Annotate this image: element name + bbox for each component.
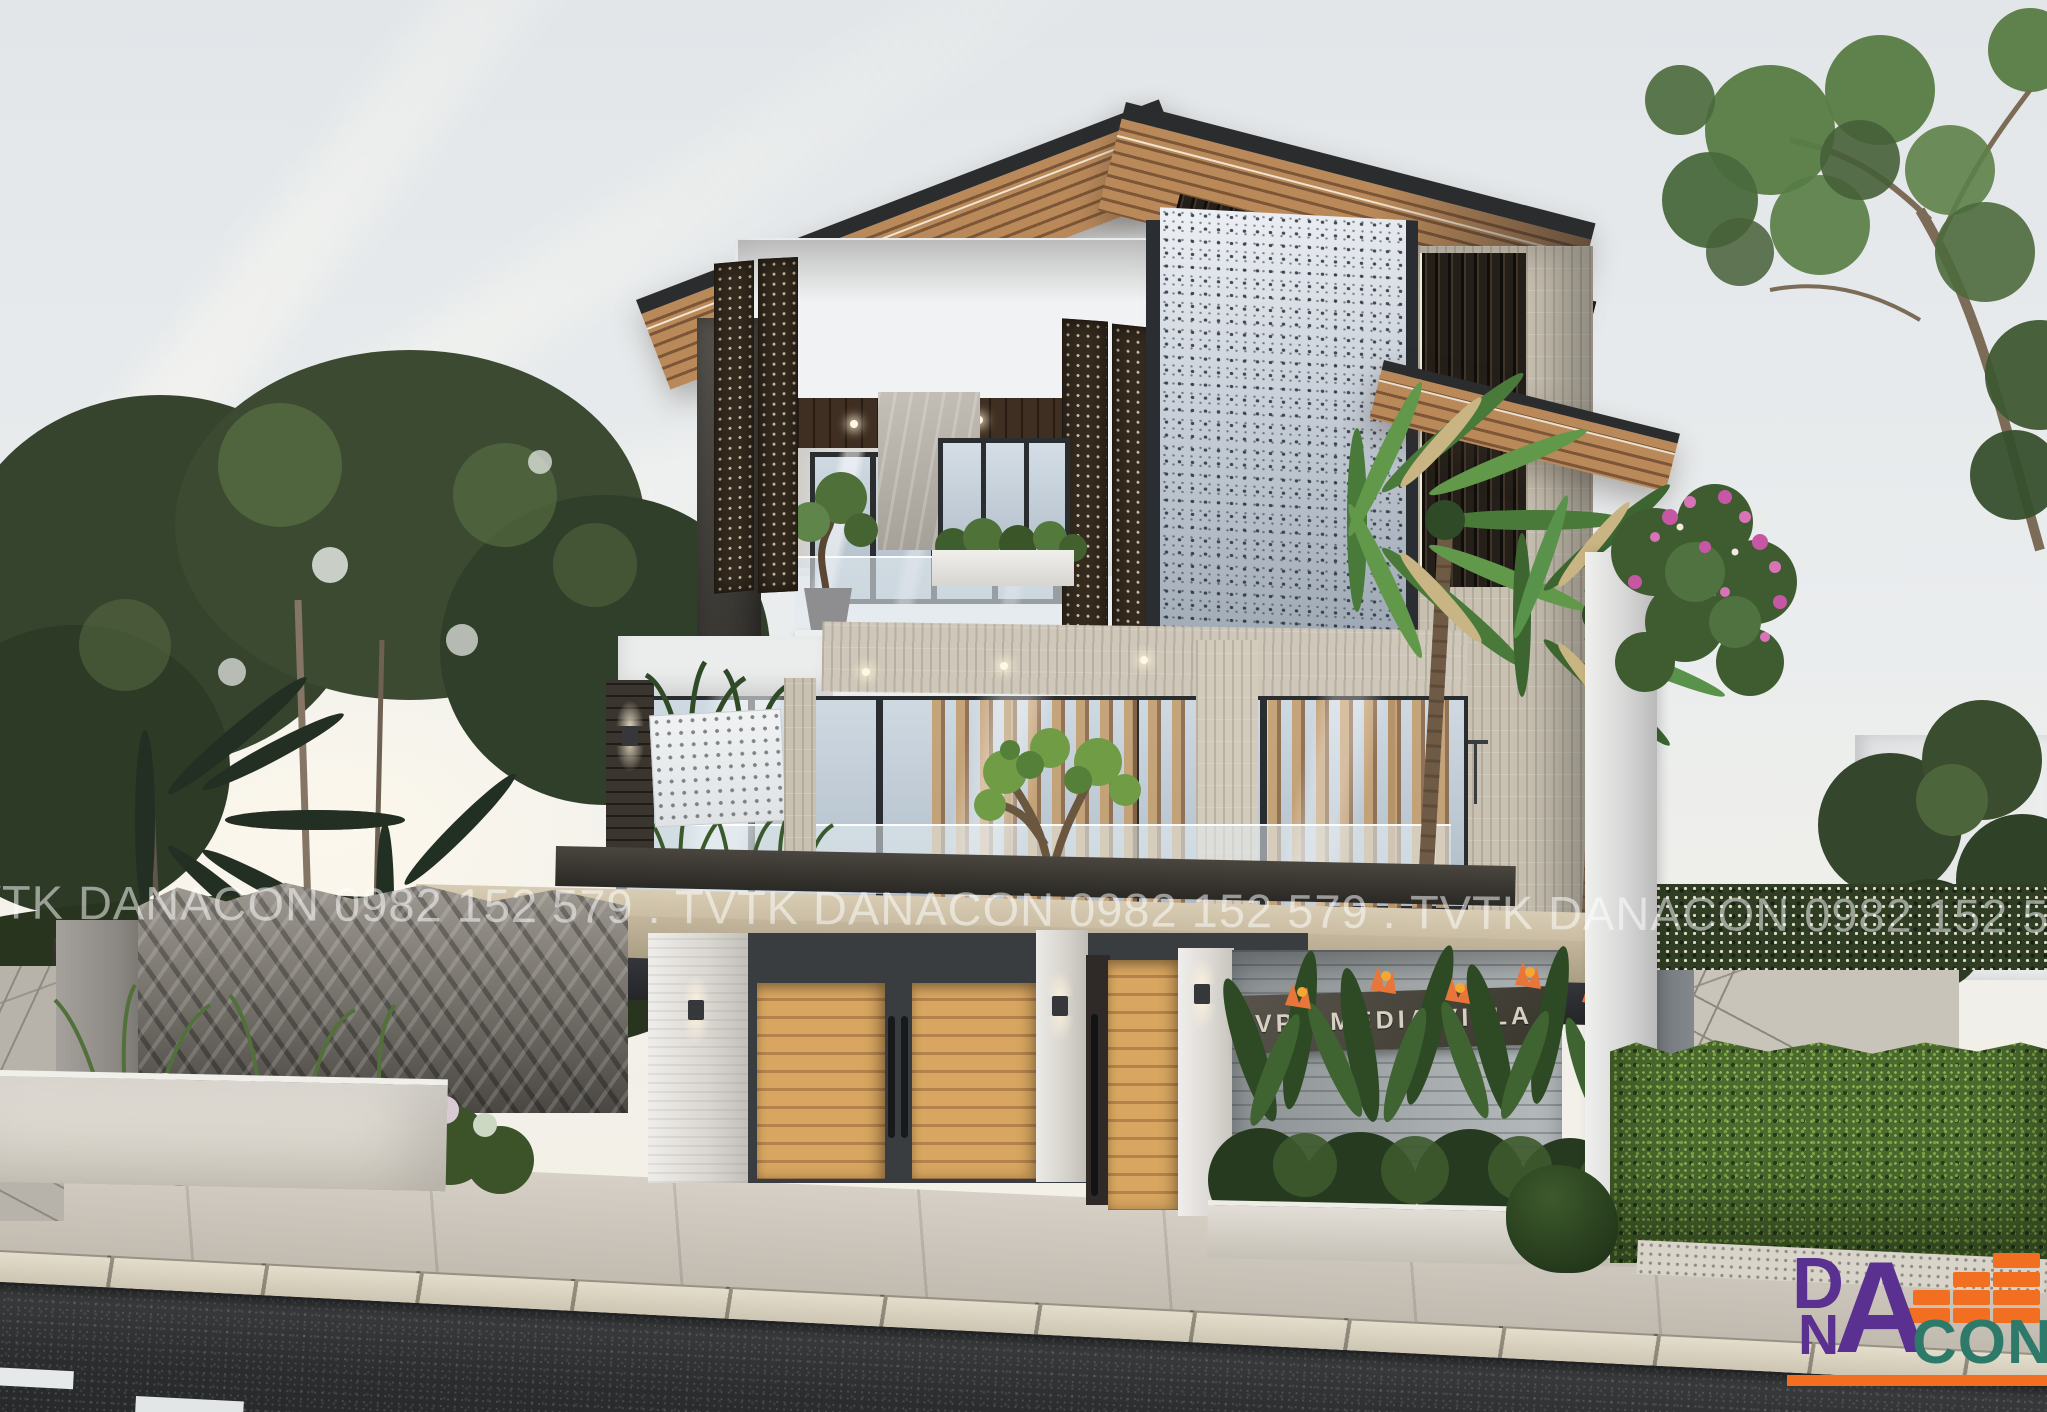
downlight — [850, 420, 858, 428]
logo-brick — [1993, 1272, 2040, 1287]
white-screen-panel — [649, 709, 787, 828]
roof-shadow-on-wall — [738, 240, 1188, 302]
gate-handle[interactable] — [901, 1016, 908, 1138]
gate-door-left[interactable] — [757, 983, 885, 1179]
perforated-shutter — [714, 260, 754, 593]
gate-pillar-left — [648, 933, 750, 1183]
logo-letter-n: N — [1798, 1307, 1839, 1364]
wall-lamp — [688, 1000, 704, 1020]
architectural-rendering: VP - MEDIA VILLA — [0, 0, 2047, 1412]
gate-travertine-column — [784, 678, 816, 860]
pedestrian-door[interactable] — [1108, 960, 1180, 1210]
downlight — [862, 668, 870, 676]
gate-pillar-mid — [1036, 930, 1088, 1182]
logo-underline — [1787, 1375, 2047, 1386]
bougainvillea — [1575, 462, 1815, 752]
boxwood-hedge — [1610, 1038, 2047, 1263]
pedestrian-door-handle[interactable] — [1091, 1014, 1098, 1196]
logo-brick — [1993, 1253, 2040, 1268]
gate-door-right[interactable] — [912, 983, 1038, 1179]
pedestrian-door-jamb — [1086, 955, 1110, 1205]
logo-word-con: CON — [1912, 1312, 2047, 1374]
logo-brick — [1953, 1290, 1990, 1305]
window-planter-box — [932, 550, 1074, 586]
garden-planter-wall — [0, 1070, 448, 1191]
gate-handle[interactable] — [888, 1016, 895, 1138]
logo-brick — [1953, 1272, 1990, 1287]
logo-brick — [1993, 1290, 2040, 1305]
wall-lamp — [1052, 996, 1068, 1016]
danacon-logo: D N A CON — [1792, 1248, 2047, 1398]
perforated-shutter — [758, 257, 798, 593]
